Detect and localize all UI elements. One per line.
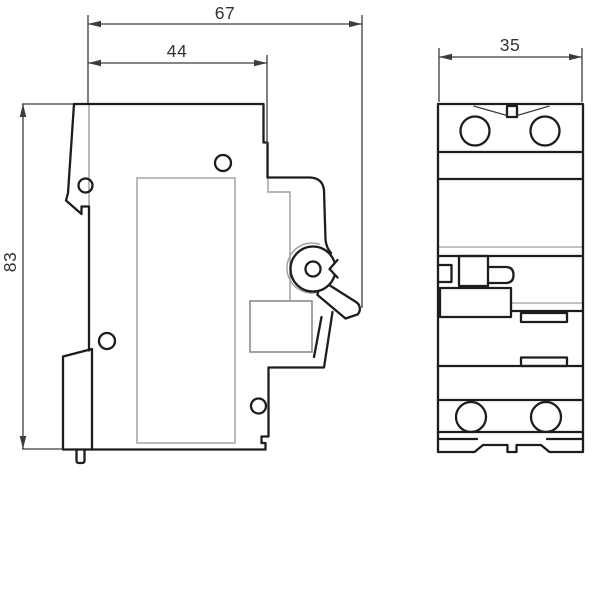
front-screw-top-right [531, 117, 560, 146]
front-terminal-funnels [474, 106, 550, 116]
side-view [63, 104, 360, 463]
drawing-canvas: 67 44 83 35 [0, 0, 600, 600]
front-label-plate [440, 288, 511, 317]
front-test-notch [438, 265, 452, 282]
side-inner-panel [250, 301, 312, 352]
side-hole-bottom-left [99, 333, 115, 349]
side-lower-rib [314, 317, 322, 357]
arrow-67-right [349, 21, 362, 28]
front-top-tab [507, 106, 517, 117]
front-toggle-pill [488, 267, 514, 283]
side-left-edge [66, 104, 89, 351]
arrow-83-top [20, 104, 27, 117]
arrow-83-bottom [20, 436, 27, 449]
dimension-labels: 67 44 83 35 [0, 3, 520, 272]
front-slot-lower [521, 358, 567, 367]
toggle-pivot-hole [306, 262, 321, 277]
arrow-44-left [88, 60, 101, 67]
front-view [438, 104, 583, 452]
arrow-35-right [569, 54, 582, 61]
dimension-arrowheads [20, 21, 582, 449]
side-inner-panel-group [250, 301, 312, 352]
side-view-outline [63, 104, 360, 463]
arrow-67-left [88, 21, 101, 28]
front-screw-top-left [461, 117, 490, 146]
front-screw-bottom-right [531, 402, 561, 432]
side-hidden-edge [268, 145, 290, 301]
front-screw-bottom-left [456, 402, 486, 432]
side-view-hidden-details [89, 104, 320, 443]
dimension-lines [20, 15, 582, 449]
side-lower-right-edge [262, 312, 333, 450]
technical-drawing: 67 44 83 35 [0, 0, 600, 600]
dim-label-width: 35 [500, 35, 520, 55]
side-label-panel [137, 178, 235, 443]
side-din-clip [63, 349, 92, 450]
side-hole-bottom-right [251, 399, 266, 414]
front-view-outline [438, 104, 583, 452]
front-toggle-handle [459, 256, 488, 286]
arrow-35-left [439, 54, 452, 61]
side-hole-top [215, 155, 231, 171]
side-bottom-tab [77, 450, 85, 464]
dim-label-overall-depth: 67 [215, 3, 235, 23]
arrow-44-right [254, 60, 267, 67]
front-slot-upper [521, 313, 567, 322]
front-funnel-left [474, 106, 508, 116]
dim-label-body-depth: 44 [167, 41, 187, 61]
front-funnel-right [517, 106, 550, 116]
side-hole-top-left [79, 179, 93, 193]
dim-label-height: 83 [0, 252, 20, 272]
